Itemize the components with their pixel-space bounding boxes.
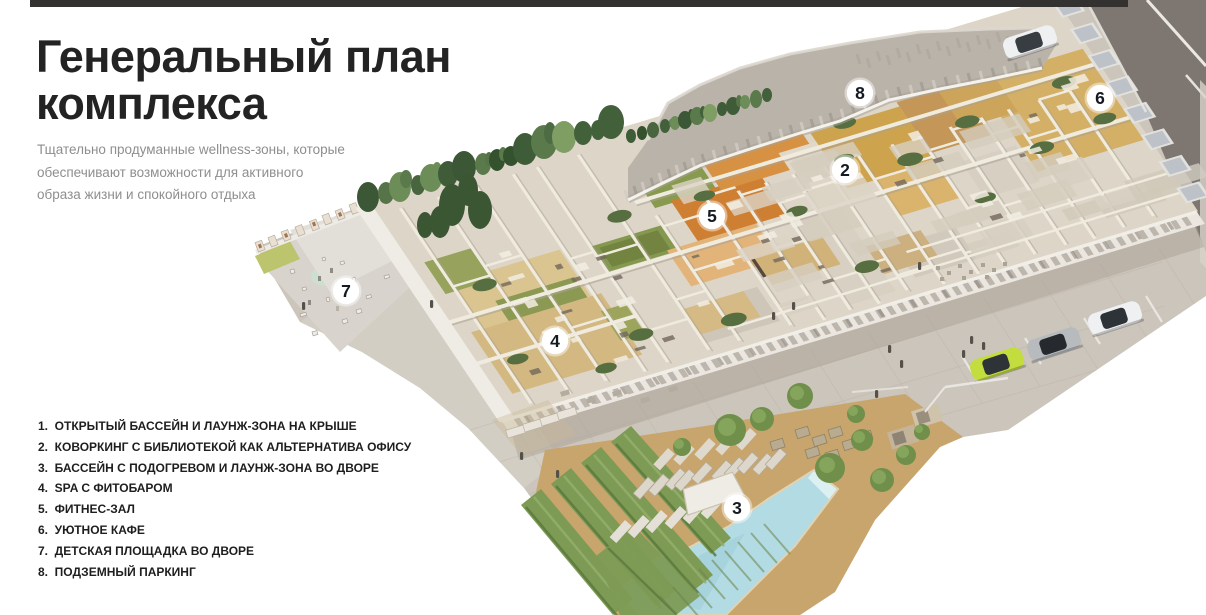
svg-text:6: 6 — [1095, 88, 1105, 108]
svg-text:3: 3 — [732, 498, 742, 518]
svg-text:8: 8 — [855, 83, 865, 103]
svg-text:5: 5 — [707, 206, 717, 226]
svg-text:2: 2 — [840, 160, 850, 180]
svg-text:4: 4 — [550, 331, 560, 351]
svg-text:7: 7 — [341, 281, 351, 301]
